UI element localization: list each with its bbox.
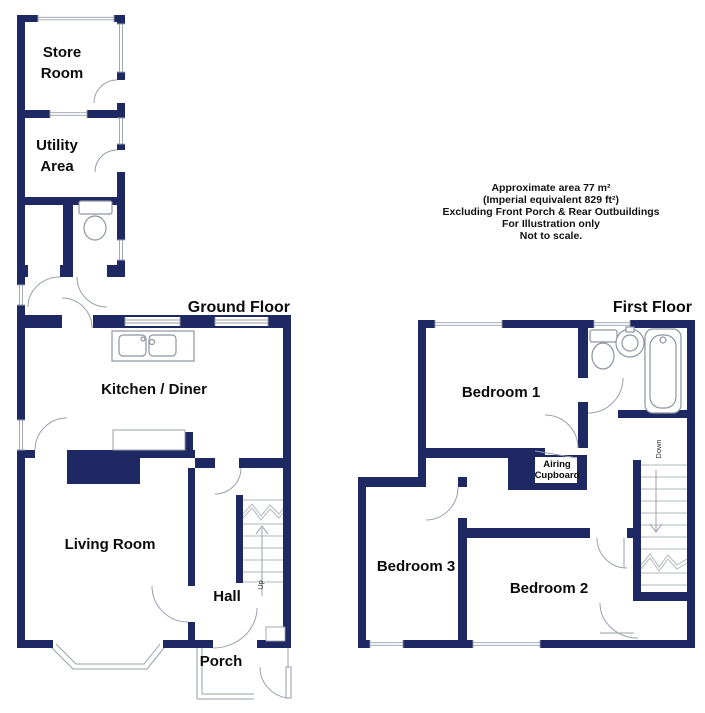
stairs-up-label: Up [256, 580, 265, 590]
bedroom-2-label: Bedroom 2 [510, 580, 588, 597]
window-icon [215, 317, 268, 326]
kitchen-sink-icon [112, 331, 194, 361]
window-icon [38, 15, 114, 22]
utility-area-label-1: Utility [36, 137, 78, 154]
staircase-down: Down [641, 439, 687, 585]
window-icon [117, 118, 125, 144]
staircase-up: Up [243, 500, 283, 596]
stairs-down-label: Down [654, 439, 663, 458]
annotation-line-3: Excluding Front Porch & Rear Outbuilding… [442, 206, 659, 218]
annotation-line-1: Approximate area 77 m² [491, 182, 611, 194]
annotation-line-2: (Imperial equivalent 829 ft²) [483, 194, 619, 206]
bedroom-3-label: Bedroom 3 [377, 558, 455, 575]
toilet-icon [590, 330, 617, 369]
airing-cupboard-label-1: Airing [543, 459, 571, 470]
window-icon [125, 317, 180, 326]
annotation-line-5: Not to scale. [520, 230, 583, 242]
window-icon [435, 320, 502, 328]
window-icon [17, 285, 25, 305]
bath-icon [645, 329, 681, 413]
porch-label: Porch [200, 653, 243, 670]
window-icon [117, 240, 125, 260]
window-icon [473, 640, 540, 648]
ground-floor-title: Ground Floor [188, 299, 290, 316]
hall-label: Hall [213, 588, 241, 605]
store-room-label-1: Store [43, 44, 81, 61]
living-room-label: Living Room [65, 536, 156, 553]
utility-area-label-2: Area [40, 158, 74, 175]
annotation-line-4: For Illustration only [502, 218, 600, 230]
kitchen-diner-label: Kitchen / Diner [101, 381, 207, 398]
sidelight-window-icon [266, 627, 285, 641]
toilet-icon [79, 201, 112, 240]
first-floor-title: First Floor [613, 299, 692, 316]
floor-plan-drawing: Up [0, 0, 705, 713]
chimney-breast [113, 430, 185, 450]
window-icon [50, 110, 87, 118]
floor-plan: Up [0, 0, 705, 713]
window-icon [17, 420, 25, 450]
airing-cupboard-label-2: Cupboard [535, 470, 580, 481]
basin-icon [616, 327, 644, 357]
store-room-label-2: Room [41, 65, 84, 82]
bedroom-1-label: Bedroom 1 [462, 384, 540, 401]
first-floor-doors [426, 378, 638, 638]
window-icon [370, 640, 403, 648]
window-icon [594, 320, 630, 328]
window-icon [117, 24, 125, 72]
